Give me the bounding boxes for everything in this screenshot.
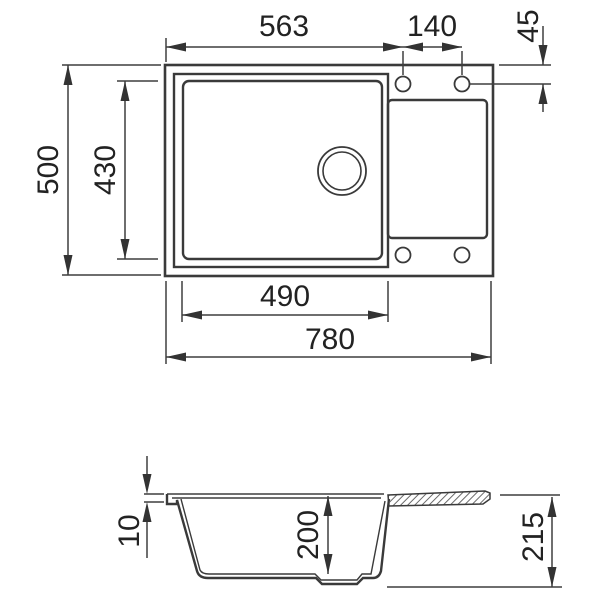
dim-label-780: 780 xyxy=(305,323,355,356)
dim-label-215: 215 xyxy=(517,512,550,562)
dim-label-140: 140 xyxy=(407,10,457,43)
dim-label-10: 10 xyxy=(113,514,146,547)
dim-label-200: 200 xyxy=(292,510,325,560)
technical-drawing-page: 563 140 45 500 430 xyxy=(0,0,600,600)
dim-label-563: 563 xyxy=(259,10,309,43)
dim-label-430: 430 xyxy=(89,145,122,195)
dim-label-45: 45 xyxy=(512,9,545,42)
dim-label-500: 500 xyxy=(32,145,65,195)
sink-dimension-diagram: 563 140 45 500 430 xyxy=(0,0,600,600)
dim-label-490: 490 xyxy=(260,280,310,313)
